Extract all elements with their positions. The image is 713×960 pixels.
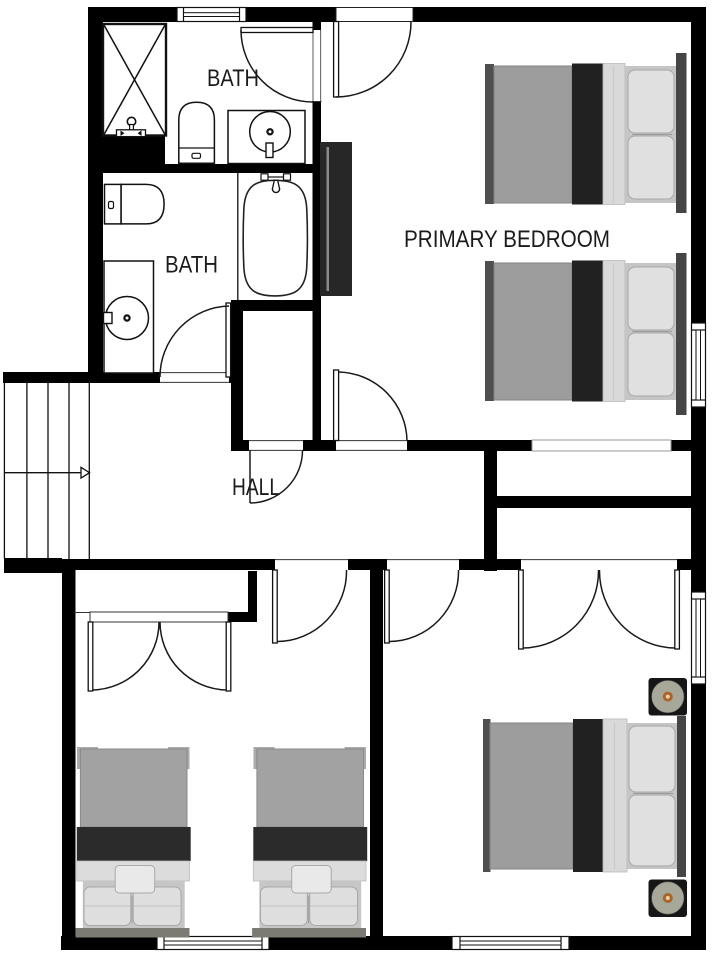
svg-text:BATH: BATH	[207, 65, 259, 92]
svg-text:BATH: BATH	[165, 252, 218, 279]
svg-text:HALL: HALL	[232, 474, 280, 501]
svg-text:PRIMARY BEDROOM: PRIMARY BEDROOM	[404, 226, 610, 253]
